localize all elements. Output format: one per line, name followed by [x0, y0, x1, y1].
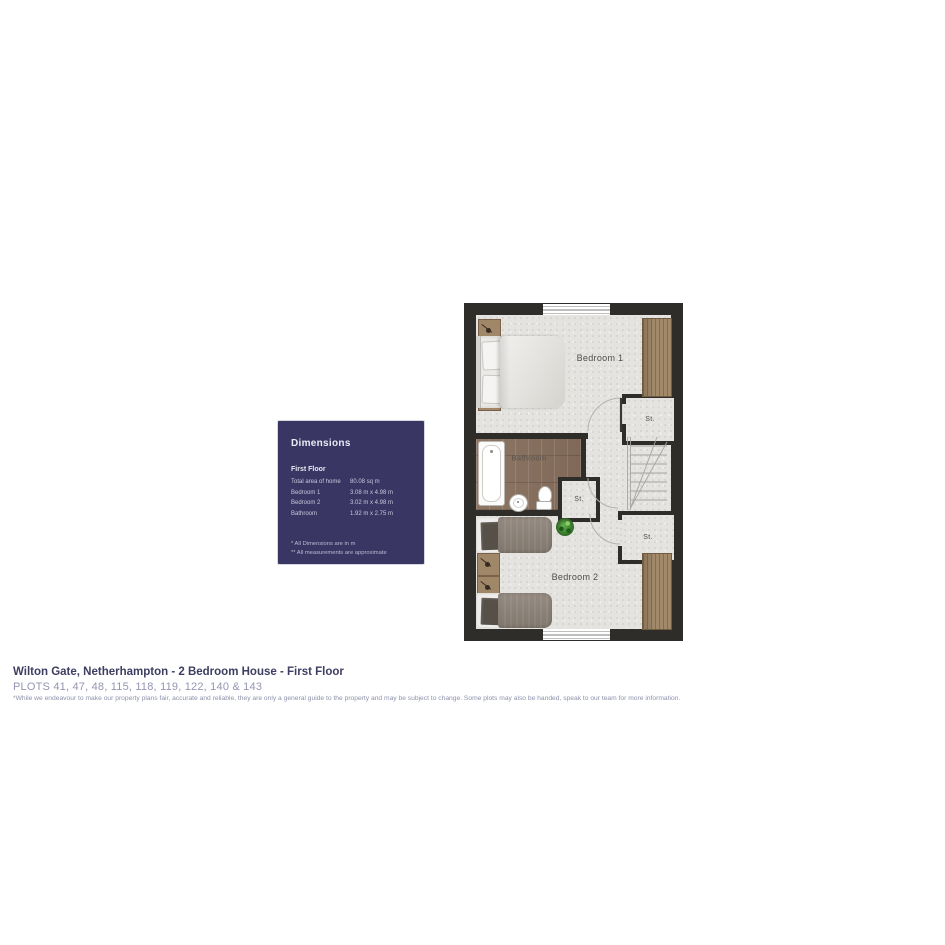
dimension-label: Bathroom	[291, 509, 350, 520]
single-bed	[476, 593, 552, 628]
storage-label: St.	[643, 534, 652, 541]
double-bed	[476, 336, 565, 408]
storage-label: St.	[574, 496, 583, 503]
dimension-label: Bedroom 1	[291, 488, 350, 499]
dimension-label: Total area of home	[291, 477, 350, 488]
toilet	[536, 486, 552, 510]
dimension-value: 80.08 sq m	[350, 477, 418, 488]
dimensions-table: Total area of home 80.08 sq m Bedroom 1 …	[291, 477, 418, 519]
window-top	[543, 304, 610, 315]
headboard	[476, 336, 481, 408]
dimensions-row: Bathroom 1.92 m x 2.75 m	[291, 509, 418, 520]
bedroom2-label: Bedroom 2	[552, 572, 599, 582]
storage-room-middle: St.	[558, 477, 600, 522]
dimensions-row: Bedroom 1 3.08 m x 4.98 m	[291, 488, 418, 499]
disclaimer: *While we endeavour to make our property…	[13, 695, 680, 702]
page: Dimensions First Floor Total area of hom…	[0, 0, 945, 945]
plant	[556, 518, 574, 536]
sink	[509, 494, 528, 512]
dimensions-floor-heading: First Floor	[291, 466, 326, 473]
duvet-fold	[500, 336, 510, 408]
wall-bathroom-right	[581, 439, 586, 480]
dimension-value: 3.02 m x 4.98 m	[350, 498, 418, 509]
bathtub	[478, 441, 505, 506]
nightstand	[477, 553, 500, 576]
sink-basin	[513, 498, 524, 508]
dimension-value: 1.92 m x 2.75 m	[350, 509, 418, 520]
single-bed	[476, 517, 552, 553]
wardrobe-bedroom2	[642, 553, 672, 630]
storage-door-opening	[618, 520, 622, 546]
window-bottom	[543, 629, 610, 640]
duvet	[498, 593, 552, 628]
storage-label: St.	[645, 416, 654, 423]
storage-room-top: St.	[622, 394, 678, 445]
dimensions-footnotes: * All Dimensions are in m ** All measure…	[291, 540, 387, 558]
storage-door-opening	[622, 404, 626, 424]
wall-bedroom1-bathroom	[464, 433, 588, 439]
dimension-label: Bedroom 2	[291, 498, 350, 509]
storage-door-opening	[588, 485, 592, 505]
duvet	[498, 517, 552, 553]
footnote: * All Dimensions are in m	[291, 540, 387, 549]
footnote: ** All measurements are approximate	[291, 549, 387, 558]
floorplan: St. St. St.	[464, 303, 683, 641]
dimensions-panel: Dimensions First Floor Total area of hom…	[278, 421, 424, 564]
page-title: Wilton Gate, Netherhampton - 2 Bedroom H…	[13, 666, 344, 678]
toilet-tank	[536, 501, 552, 510]
dimensions-row: Total area of home 80.08 sq m	[291, 477, 418, 488]
plots-list: PLOTS 41, 47, 48, 115, 118, 119, 122, 14…	[13, 681, 262, 693]
wardrobe-bedroom1	[642, 318, 672, 397]
sink-tap	[517, 501, 519, 503]
bathtub-basin	[482, 445, 501, 502]
bathtub-drain	[490, 450, 493, 453]
dimensions-panel-title: Dimensions	[291, 438, 351, 449]
dimension-value: 3.08 m x 4.98 m	[350, 488, 418, 499]
dimensions-row: Bedroom 2 3.02 m x 4.98 m	[291, 498, 418, 509]
bathroom-label: Bathroom	[512, 454, 547, 463]
bedroom1-label: Bedroom 1	[577, 353, 624, 363]
